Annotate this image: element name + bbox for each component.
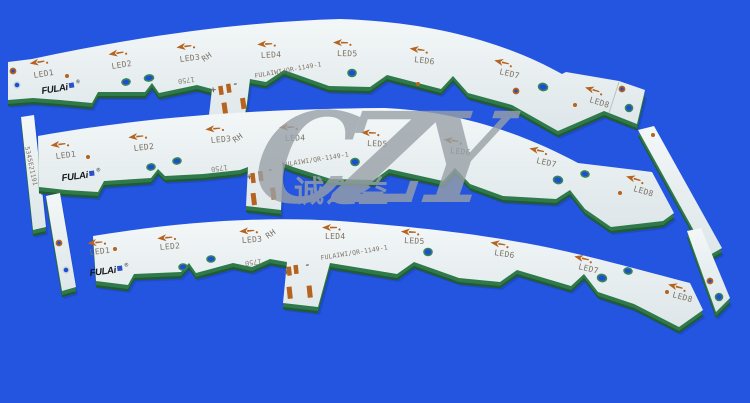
mounting-hole bbox=[716, 294, 723, 301]
led-label: LED3 bbox=[242, 235, 263, 245]
solder-pad bbox=[286, 266, 291, 275]
mounting-hole bbox=[144, 74, 154, 81]
copper-via bbox=[65, 74, 69, 78]
copper-via bbox=[618, 191, 622, 195]
copper-via bbox=[86, 155, 90, 159]
mounting-hole bbox=[63, 267, 69, 273]
mounting-hole bbox=[179, 264, 187, 271]
copper-hole bbox=[514, 89, 519, 94]
logo-mark-icon bbox=[69, 82, 75, 88]
mounting-hole bbox=[14, 82, 20, 88]
logo-mark-icon bbox=[89, 171, 95, 177]
led-label: LED5 bbox=[404, 236, 425, 246]
copper-via bbox=[573, 103, 577, 107]
logo-mark-icon bbox=[117, 266, 123, 272]
mounting-hole bbox=[624, 267, 633, 274]
solder-pad bbox=[293, 265, 298, 274]
mounting-hole bbox=[207, 256, 215, 263]
mounting-hole bbox=[173, 158, 182, 165]
copper-hole bbox=[11, 69, 16, 74]
copper-hole bbox=[57, 241, 62, 246]
mounting-hole bbox=[597, 274, 607, 282]
copper-hole bbox=[620, 87, 625, 92]
pcb-photo: LED1 LED2 LED3 LED4 LED5 LED6 LED7 LED8 … bbox=[0, 0, 750, 403]
brand-registered-mark: ® bbox=[124, 261, 130, 269]
led-label: LED2 bbox=[159, 241, 180, 252]
photo-canvas: LED1 LED2 LED3 LED4 LED5 LED6 LED7 LED8 … bbox=[0, 0, 750, 403]
mounting-hole bbox=[581, 170, 590, 177]
mounting-hole bbox=[626, 105, 633, 112]
led-label: LED3 bbox=[210, 134, 231, 145]
led-label: LED5 bbox=[337, 49, 358, 58]
copper-via bbox=[665, 290, 669, 294]
mounting-hole bbox=[348, 70, 356, 77]
brand-registered-mark: ® bbox=[96, 166, 102, 174]
copper-via bbox=[113, 247, 117, 251]
watermark-registered-mark: ® bbox=[415, 111, 433, 132]
mounting-hole bbox=[424, 249, 432, 256]
mounting-hole bbox=[147, 164, 156, 171]
copper-via bbox=[651, 133, 655, 137]
led-label: LED4 bbox=[261, 50, 282, 60]
copper-hole bbox=[708, 279, 713, 284]
mounting-hole bbox=[122, 78, 131, 85]
watermark-chinese-text: 诚之益 bbox=[294, 175, 390, 210]
led-label: LED4 bbox=[325, 232, 345, 241]
mounting-hole bbox=[553, 176, 563, 184]
